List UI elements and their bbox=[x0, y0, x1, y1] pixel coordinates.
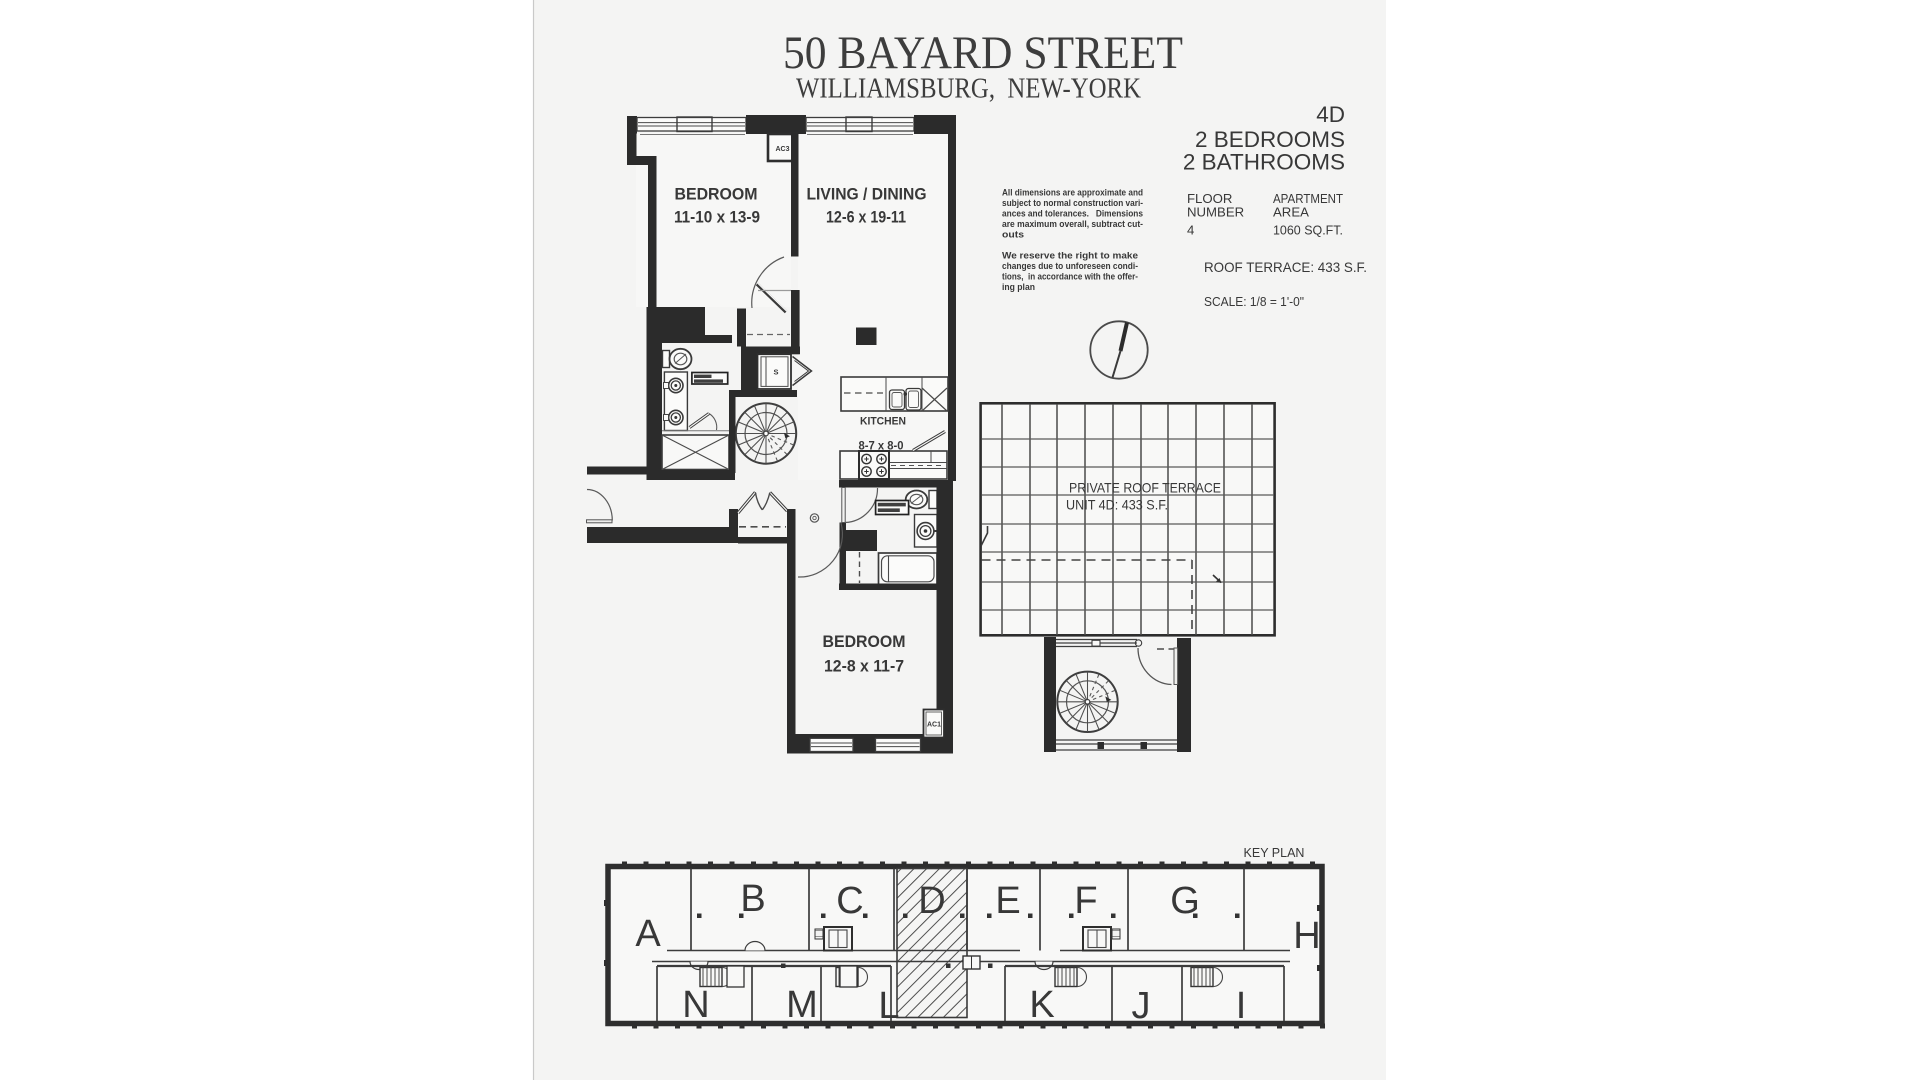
svg-text:C: C bbox=[836, 880, 863, 922]
svg-text:F: F bbox=[1074, 880, 1097, 922]
svg-text:UNIT 4D: 433 S.F.: UNIT 4D: 433 S.F. bbox=[1066, 498, 1168, 513]
svg-text:L: L bbox=[878, 985, 899, 1027]
svg-text:12-8 x 11-7: 12-8 x 11-7 bbox=[824, 658, 904, 676]
svg-text:N: N bbox=[682, 984, 709, 1026]
svg-text:We reserve the right to make: We reserve the right to make bbox=[1002, 251, 1138, 261]
svg-text:J: J bbox=[1132, 985, 1151, 1027]
svg-text:2 BEDROOMS: 2 BEDROOMS bbox=[1195, 127, 1345, 152]
svg-text:LIVING / DINING: LIVING / DINING bbox=[807, 186, 927, 204]
svg-text:ances and tolerances. Dimens: ances and tolerances. Dimensions bbox=[1002, 209, 1143, 219]
svg-text:KEY PLAN: KEY PLAN bbox=[1244, 846, 1305, 860]
svg-text:B: B bbox=[740, 878, 765, 920]
svg-text:AC3: AC3 bbox=[775, 146, 789, 153]
svg-text:ing plan: ing plan bbox=[1002, 282, 1035, 292]
svg-text:All dimensions are approximate: All dimensions are approximate and bbox=[1002, 188, 1143, 198]
svg-text:K: K bbox=[1029, 984, 1054, 1026]
svg-text:WILLIAMSBURG, NEW-YORK: WILLIAMSBURG, NEW-YORK bbox=[796, 74, 1141, 105]
svg-text:D: D bbox=[918, 880, 945, 922]
svg-text:KITCHEN: KITCHEN bbox=[860, 416, 906, 428]
svg-text:2 BATHROOMS: 2 BATHROOMS bbox=[1183, 150, 1345, 175]
svg-text:outs: outs bbox=[1002, 230, 1024, 240]
svg-text:H: H bbox=[1293, 915, 1320, 957]
svg-text:AC1: AC1 bbox=[927, 722, 941, 729]
svg-text:A: A bbox=[635, 913, 661, 955]
svg-text:subject to normal construction: subject to normal construction vari- bbox=[1002, 198, 1143, 208]
svg-text:E: E bbox=[995, 880, 1020, 922]
svg-text:12-6 x 19-11: 12-6 x 19-11 bbox=[826, 209, 906, 227]
svg-text:SCALE: 1/8 = 1'-0": SCALE: 1/8 = 1'-0" bbox=[1204, 294, 1304, 309]
svg-text:1060 SQ.FT.: 1060 SQ.FT. bbox=[1273, 223, 1343, 238]
svg-text:tions, in accordance with the: tions, in accordance with the offer- bbox=[1002, 272, 1138, 282]
svg-text:4D: 4D bbox=[1316, 102, 1345, 127]
svg-text:4: 4 bbox=[1187, 223, 1194, 238]
svg-text:BEDROOM: BEDROOM bbox=[675, 186, 758, 204]
svg-text:NUMBER: NUMBER bbox=[1187, 205, 1244, 220]
svg-text:BEDROOM: BEDROOM bbox=[823, 633, 906, 651]
svg-text:M: M bbox=[786, 984, 818, 1026]
svg-text:I: I bbox=[1236, 985, 1247, 1027]
svg-text:G: G bbox=[1170, 880, 1200, 922]
svg-text:changes due to unforeseen cond: changes due to unforeseen condi- bbox=[1002, 261, 1138, 271]
svg-text:PRIVATE ROOF TERRACE: PRIVATE ROOF TERRACE bbox=[1069, 481, 1221, 496]
svg-text:11-10 x 13-9: 11-10 x 13-9 bbox=[674, 209, 760, 227]
svg-text:AREA: AREA bbox=[1273, 205, 1309, 220]
svg-text:50 BAYARD STREET: 50 BAYARD STREET bbox=[783, 27, 1183, 79]
svg-text:ROOF TERRACE: 433 S.F.: ROOF TERRACE: 433 S.F. bbox=[1204, 259, 1367, 275]
svg-text:are maximum overall, subtract: are maximum overall, subtract cut- bbox=[1002, 219, 1143, 229]
svg-text:S: S bbox=[773, 368, 778, 377]
